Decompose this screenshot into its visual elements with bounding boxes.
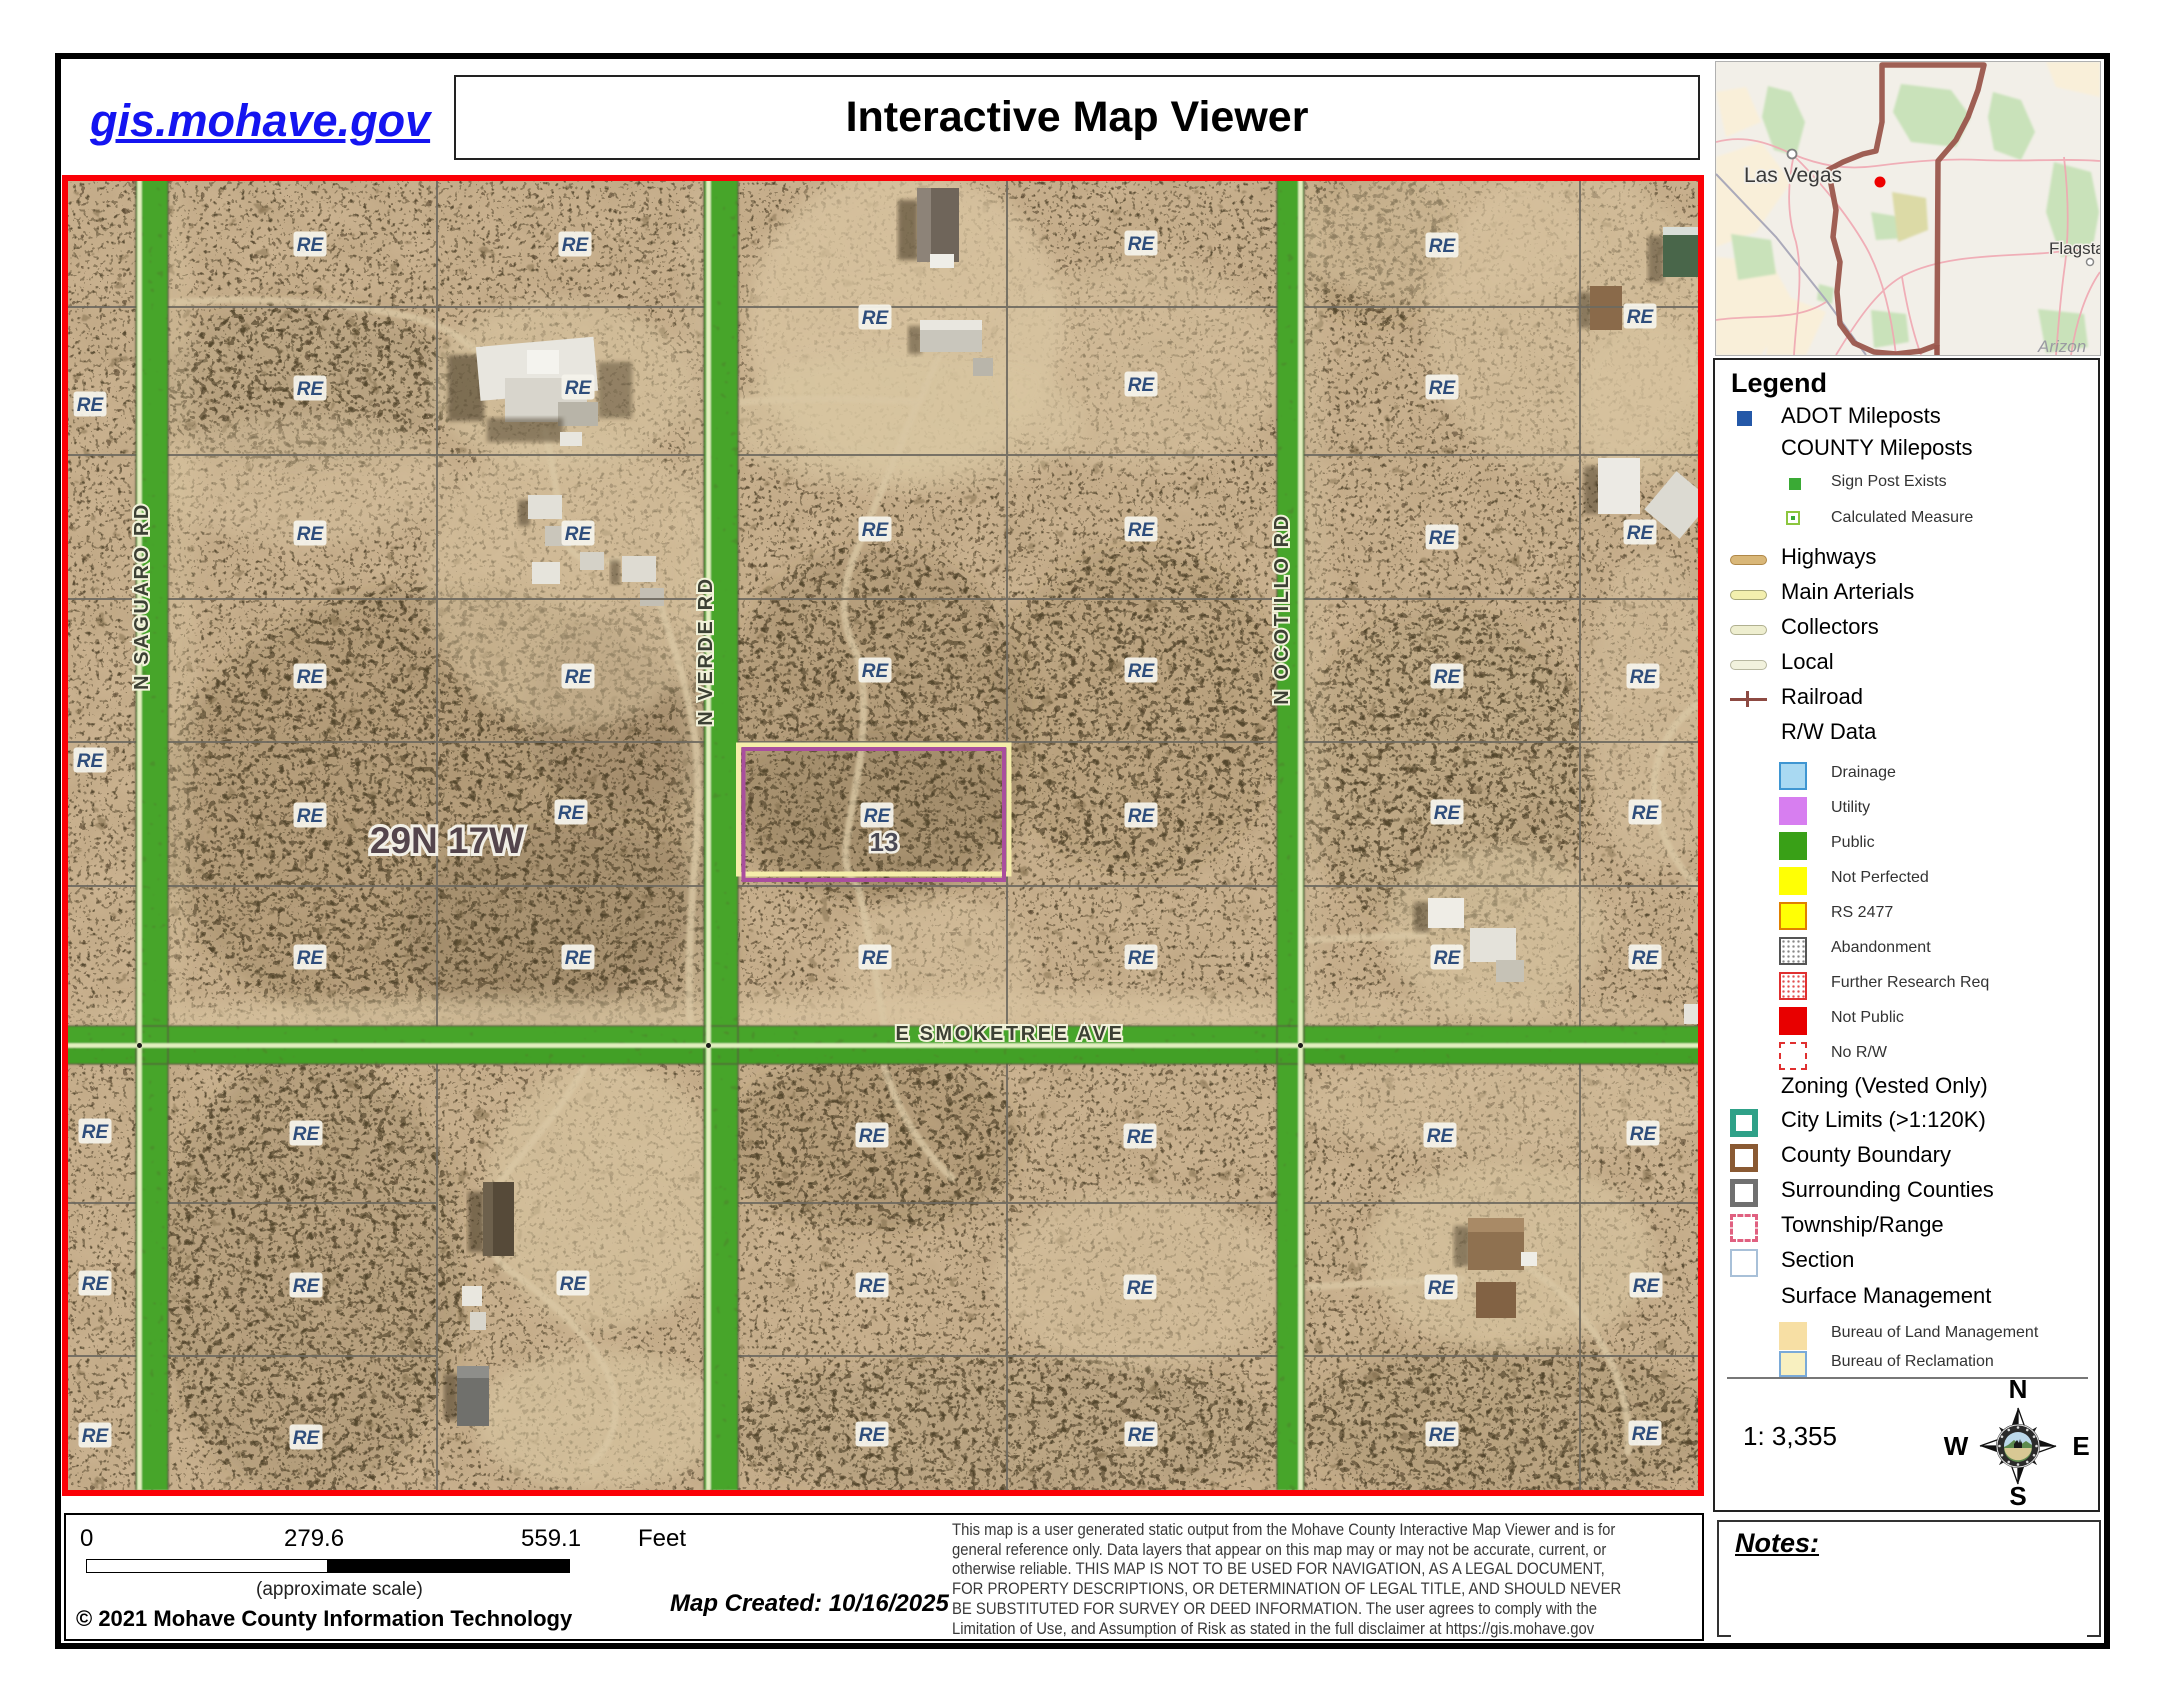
svg-text:N SAGUARO RD: N SAGUARO RD [131, 502, 153, 690]
svg-text:RE: RE [1434, 948, 1462, 969]
svg-text:RE: RE [1633, 1276, 1661, 1297]
svg-text:RE: RE [859, 1126, 887, 1147]
svg-text:W: W [1944, 1431, 1969, 1461]
svg-text:RE: RE [558, 803, 586, 824]
svg-text:E SMOKETREE AVE: E SMOKETREE AVE [895, 1023, 1124, 1045]
svg-text:Flagsta: Flagsta [2049, 239, 2100, 258]
svg-text:N VERDE RD: N VERDE RD [695, 576, 717, 725]
svg-text:RE: RE [565, 524, 593, 545]
svg-text:RE: RE [1434, 667, 1462, 688]
svg-text:RE: RE [297, 379, 325, 400]
svg-text:RE: RE [1632, 803, 1660, 824]
svg-text:RE: RE [1128, 948, 1156, 969]
svg-text:RE: RE [293, 1124, 321, 1145]
svg-text:RE: RE [1630, 667, 1658, 688]
svg-text:S: S [2009, 1481, 2026, 1510]
svg-text:RE: RE [1429, 378, 1457, 399]
svg-text:RE: RE [297, 806, 325, 827]
svg-text:RE: RE [562, 235, 590, 256]
svg-text:RE: RE [1632, 948, 1660, 969]
svg-text:RE: RE [862, 948, 890, 969]
svg-text:RE: RE [1434, 803, 1462, 824]
svg-text:RE: RE [293, 1428, 321, 1449]
svg-text:RE: RE [1630, 1124, 1658, 1145]
svg-text:RE: RE [862, 520, 890, 541]
svg-text:RE: RE [1627, 523, 1655, 544]
svg-text:29N 17W: 29N 17W [370, 820, 524, 861]
svg-text:RE: RE [1632, 1424, 1660, 1445]
svg-text:RE: RE [565, 667, 593, 688]
svg-text:RE: RE [1128, 661, 1156, 682]
svg-text:RE: RE [1429, 1425, 1457, 1446]
svg-text:RE: RE [859, 1425, 887, 1446]
svg-text:RE: RE [1128, 234, 1156, 255]
svg-text:RE: RE [864, 806, 892, 827]
svg-text:RE: RE [1128, 1425, 1156, 1446]
svg-text:Arizon: Arizon [2037, 337, 2086, 355]
svg-text:RE: RE [297, 948, 325, 969]
svg-text:RE: RE [565, 378, 593, 399]
svg-text:RE: RE [560, 1274, 588, 1295]
svg-text:RE: RE [1429, 528, 1457, 549]
svg-text:RE: RE [565, 948, 593, 969]
svg-text:RE: RE [77, 395, 105, 416]
svg-text:RE: RE [297, 524, 325, 545]
svg-text:RE: RE [1427, 1126, 1455, 1147]
svg-text:RE: RE [859, 1276, 887, 1297]
svg-text:RE: RE [1627, 307, 1655, 328]
svg-text:Las Vegas: Las Vegas [1744, 164, 1842, 187]
svg-text:RE: RE [862, 308, 890, 329]
svg-text:RE: RE [1428, 1278, 1456, 1299]
svg-text:N: N [2009, 1380, 2028, 1404]
svg-text:RE: RE [82, 1274, 110, 1295]
svg-text:RE: RE [1127, 1127, 1155, 1148]
svg-text:RE: RE [82, 1122, 110, 1143]
svg-text:13: 13 [870, 827, 899, 857]
svg-text:RE: RE [1128, 806, 1156, 827]
svg-text:E: E [2072, 1431, 2089, 1461]
svg-text:N OCOTILLO RD: N OCOTILLO RD [1271, 513, 1293, 705]
svg-text:RE: RE [862, 661, 890, 682]
svg-text:RE: RE [1128, 520, 1156, 541]
svg-text:RE: RE [77, 751, 105, 772]
svg-text:RE: RE [1429, 236, 1457, 257]
svg-text:RE: RE [297, 235, 325, 256]
svg-text:RE: RE [297, 667, 325, 688]
svg-text:RE: RE [1127, 1278, 1155, 1299]
svg-text:RE: RE [293, 1276, 321, 1297]
svg-text:RE: RE [82, 1426, 110, 1447]
svg-text:RE: RE [1128, 375, 1156, 396]
